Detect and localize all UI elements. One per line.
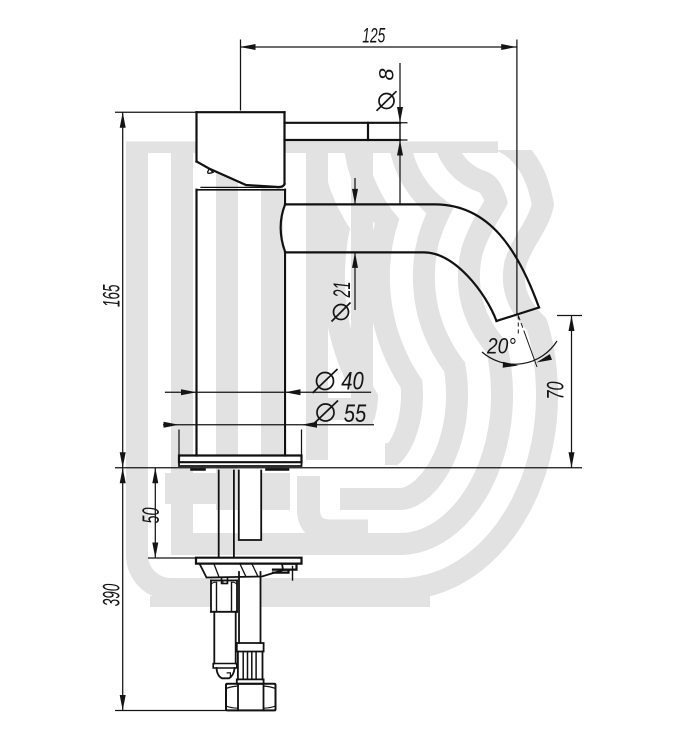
- svg-text:50: 50: [138, 507, 165, 523]
- svg-text:390: 390: [99, 584, 126, 607]
- svg-text:8: 8: [375, 68, 399, 80]
- svg-text:55: 55: [344, 400, 367, 428]
- svg-text:20°: 20°: [486, 334, 516, 359]
- svg-text:40: 40: [341, 368, 364, 396]
- svg-text:165: 165: [99, 284, 126, 307]
- svg-text:125: 125: [362, 24, 386, 48]
- svg-text:70: 70: [543, 381, 570, 399]
- svg-text:21: 21: [329, 282, 356, 299]
